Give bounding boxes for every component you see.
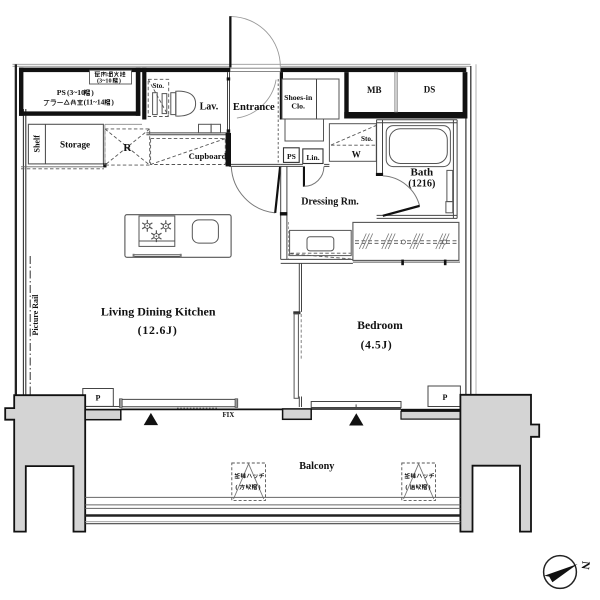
svg-text:Bedroom: Bedroom <box>357 319 403 332</box>
svg-text:FIX: FIX <box>223 412 235 419</box>
svg-text:Entrance: Entrance <box>233 102 275 113</box>
svg-text:Storage: Storage <box>60 140 90 150</box>
svg-text:): ) <box>258 484 260 491</box>
svg-text:PS: PS <box>287 152 296 161</box>
svg-text:Picture Rail: Picture Rail <box>31 294 40 336</box>
svg-text:Balcony: Balcony <box>299 461 334 472</box>
svg-text:Clo.: Clo. <box>291 101 305 110</box>
svg-text:R: R <box>123 142 132 154</box>
svg-text:(: ( <box>405 484 407 491</box>
svg-text:PS: PS <box>57 88 66 97</box>
svg-text:Sto.: Sto. <box>153 82 165 90</box>
svg-text:Living Dining Kitchen: Living Dining Kitchen <box>101 305 216 319</box>
svg-text:Sto.: Sto. <box>361 135 373 143</box>
svg-text:Shelf: Shelf <box>32 135 41 153</box>
svg-text:P: P <box>95 393 100 402</box>
svg-text:Dressing Rm.: Dressing Rm. <box>301 197 359 208</box>
svg-text:): ) <box>428 484 430 491</box>
svg-text:MB: MB <box>367 85 382 95</box>
svg-text:Bath: Bath <box>410 167 433 179</box>
svg-text:(3~10: (3~10 <box>67 88 85 97</box>
svg-text:(3~10: (3~10 <box>97 77 112 84</box>
svg-text:(12.6J): (12.6J) <box>138 323 178 337</box>
svg-text:(4.5J): (4.5J) <box>361 339 393 351</box>
svg-text:Cupboard: Cupboard <box>189 151 227 161</box>
svg-text:(1216): (1216) <box>408 179 435 190</box>
svg-text:Lav.: Lav. <box>200 101 219 112</box>
svg-text:(11~14: (11~14 <box>84 97 105 106</box>
svg-text:DS: DS <box>424 85 436 95</box>
svg-text:(: ( <box>235 484 237 491</box>
svg-text:Lin.: Lin. <box>306 153 319 162</box>
svg-text:P: P <box>442 393 447 402</box>
svg-text:): ) <box>119 77 121 84</box>
svg-text:W: W <box>352 150 361 160</box>
